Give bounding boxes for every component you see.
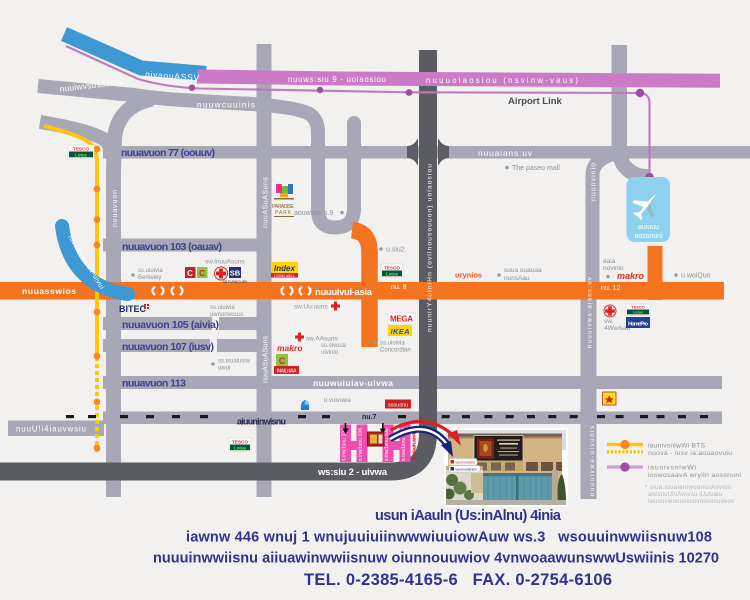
svg-text:TESCO: TESCO — [384, 265, 400, 270]
svg-text:nu. 12: nu. 12 — [601, 285, 621, 292]
svg-text:nuuuivwa-uivunis: nuuuivwa-uivunis — [590, 426, 596, 496]
svg-text:Lotus: Lotus — [234, 445, 247, 450]
svg-text:auiuuu: auiuuu — [638, 224, 659, 231]
svg-text:aaia: aaia — [603, 258, 616, 265]
svg-text:Lotus: Lotus — [386, 271, 399, 276]
svg-text:iaunivsnlwWi: iaunivsnlwWi — [648, 465, 696, 472]
svg-text:C: C — [187, 269, 193, 278]
svg-text:ss.isualuisw: ss.isualuisw — [218, 359, 251, 365]
svg-text:TEL. 0-2385-4165-6 FAX. 0-27: TEL. 0-2385-4165-6 FAX. 0-2754-6106 — [304, 571, 612, 589]
svg-text:u.woiQuo: u.woiQuo — [681, 273, 711, 280]
svg-text:nu.7: nu.7 — [362, 414, 376, 421]
svg-text:ioswosaavA wryiln aossnuni: ioswosaavA wryiln aossnuni — [648, 472, 741, 479]
svg-text:SB FURNITURE: SB FURNITURE — [222, 280, 248, 284]
svg-text:nuunvinio: nuunvinio — [591, 163, 598, 201]
svg-text:HomePro: HomePro — [628, 322, 649, 328]
svg-text:nuuavuon 105 (aivia): nuuavuon 105 (aivia) — [122, 319, 219, 331]
svg-text:aisisnuUlnAvovsu iUuluaiu: aisisnuUlnAvovsu iUuluaiu — [648, 492, 722, 498]
svg-text:sw.lnuuAsuns: sw.lnuuAsuns — [205, 259, 245, 266]
svg-text:nu. 8: nu. 8 — [391, 284, 407, 291]
svg-text:nuuasswios: nuuasswios — [22, 286, 76, 296]
svg-text:IKEA: IKEA — [391, 327, 410, 336]
svg-text:s.inw1snu 108: s.inw1snu 108 — [384, 428, 390, 461]
svg-text:TESCO: TESCO — [232, 439, 248, 444]
svg-text:usun iAauln (Us:inAlnu) 4inia: usun iAauln (Us:inAlnu) 4inia — [375, 508, 562, 524]
svg-text:LIVING MALL: LIVING MALL — [274, 274, 295, 278]
svg-text:nuuavuon 113: nuuavuon 113 — [122, 378, 186, 390]
svg-text:Concordian: Concordian — [380, 348, 411, 354]
svg-text:iaunivuiainlsv: iaunivuiainlsv — [456, 468, 478, 472]
svg-text:uivnonwcuui: uivnonwcuui — [210, 312, 243, 318]
svg-text:INAILnIAA: INAILnIAA — [277, 369, 298, 375]
svg-text:BITEC: BITEC — [119, 304, 147, 314]
svg-text:aossnuni: aossnuni — [634, 233, 662, 240]
svg-text:Berkeley: Berkeley — [138, 275, 161, 281]
svg-text:ss.uiuivia: ss.uiuivia — [138, 268, 163, 274]
svg-text:* siua:iouaianiwuanisiAsvnis: * siua:iouaianiwuanisiAsvnis — [645, 485, 731, 491]
svg-text:nuuavuon 107 (iusv): nuuavuon 107 (iusv) — [122, 341, 214, 353]
svg-text:nuuuinwwiisnu aiiuawinwwiisnuw: nuuuinwwiisnu aiiuawinwwiisnuw oiunnouuw… — [153, 551, 719, 567]
svg-text:uivui: uivui — [218, 366, 230, 372]
svg-text:nuuavuon 103 (oauav): nuuavuon 103 (oauav) — [122, 241, 222, 253]
svg-text:The paseo mall: The paseo mall — [512, 165, 560, 172]
svg-text:u.vuivuwa: u.vuivuwa — [324, 398, 351, 404]
svg-text:iaunivsnlwWi BTS: iaunivsnlwWi BTS — [648, 443, 705, 450]
svg-text:sw.Uu:uuns: sw.Uu:uuns — [294, 304, 328, 311]
svg-text:nuuws:siu 9 - uoiaosiou: nuuws:siu 9 - uoiaosiou — [288, 75, 386, 84]
svg-text:nuunirY4uiniHn (ovilnousouuon): nuunirY4uiniHn (ovilnousouuon) uoiaosiou — [427, 164, 434, 332]
svg-text:TESCO: TESCO — [631, 305, 645, 310]
svg-text:nuuU!i4iauvwsiu: nuuU!i4iauvwsiu — [16, 425, 86, 434]
svg-text:ss.uiuivia: ss.uiuivia — [210, 305, 235, 311]
svg-text:iwuvovwuouviusivnisninuovov: iwuvovwuouviusivnisninuovov — [648, 499, 734, 505]
svg-text:C: C — [279, 356, 286, 366]
svg-text:MEGA: MEGA — [390, 315, 413, 324]
svg-text:nuuwcuuinis: nuuwcuuinis — [197, 100, 255, 110]
svg-text:ss.uiuivia: ss.uiuivia — [380, 341, 405, 347]
svg-text:u.siu2: u.siu2 — [386, 247, 405, 254]
svg-text:Airport Link: Airport Link — [508, 96, 563, 107]
svg-text:nuuaians:uv: nuuaians:uv — [478, 148, 533, 158]
svg-text:Lotus: Lotus — [633, 311, 643, 315]
svg-text:SB: SB — [230, 269, 241, 278]
svg-text:iaunivuiuivui: iaunivuiuivui — [456, 461, 476, 465]
svg-text:nuuavuon: nuuavuon — [112, 190, 119, 227]
svg-text:Lotus: Lotus — [75, 152, 88, 157]
svg-text:nuuuivui-asia: nuuuivui-asia — [315, 287, 373, 298]
svg-text:makro: makro — [617, 271, 645, 281]
svg-text:PARK: PARK — [275, 210, 292, 216]
svg-text:nuova - iusv ia:aouaovuiu: nuova - iusv ia:aouaovuiu — [648, 450, 732, 457]
svg-text:iawnw 446 wnuj 1 wnujuuiuiinww: iawnw 446 wnuj 1 wnujuuiuiinwwwiuuiowAuw… — [186, 530, 712, 546]
svg-text:ws:siu 2 - uivwa: ws:siu 2 - uivwa — [317, 467, 388, 478]
svg-text:nunsAau: nunsAau — [504, 275, 530, 282]
svg-text:nuuuivwa-aians:uv: nuuuivwa-aians:uv — [588, 277, 594, 348]
svg-text:uivinio: uivinio — [321, 350, 339, 356]
svg-text:TESCO: TESCO — [73, 146, 89, 151]
svg-text:ss.sivoua: ss.sivoua — [321, 343, 347, 349]
svg-text:nuuASuASuns: nuuASuASuns — [263, 336, 270, 384]
svg-text:makro: makro — [277, 343, 303, 353]
svg-text:sw.AAsuns: sw.AAsuns — [306, 336, 339, 343]
svg-text:sssusnu: sssusnu — [388, 403, 408, 409]
svg-text:nuuavuon 77 (oouuv): nuuavuon 77 (oouuv) — [121, 147, 215, 159]
svg-text:aiuuninwisnu: aiuuninwisnu — [237, 417, 286, 427]
svg-text:s.inw1snu 104: s.inw1snu 104 — [342, 428, 348, 461]
svg-text:Index: Index — [274, 264, 295, 273]
svg-text:urynios: urynios — [455, 271, 482, 280]
svg-text:nuuwuiuiav-uivwa: nuuwuiuiav-uivwa — [313, 378, 393, 388]
svg-text:nuuASuASuns: nuuASuASuns — [263, 177, 270, 229]
svg-text:s.inw1snu 106: s.inw1snu 106 — [358, 428, 364, 461]
svg-text:suua ouauaa: suua ouauaa — [504, 267, 542, 274]
svg-text:sw.: sw. — [604, 318, 614, 325]
svg-text:aouwaov s.9: aouwaov s.9 — [294, 210, 333, 217]
svg-text:C: C — [199, 269, 205, 278]
